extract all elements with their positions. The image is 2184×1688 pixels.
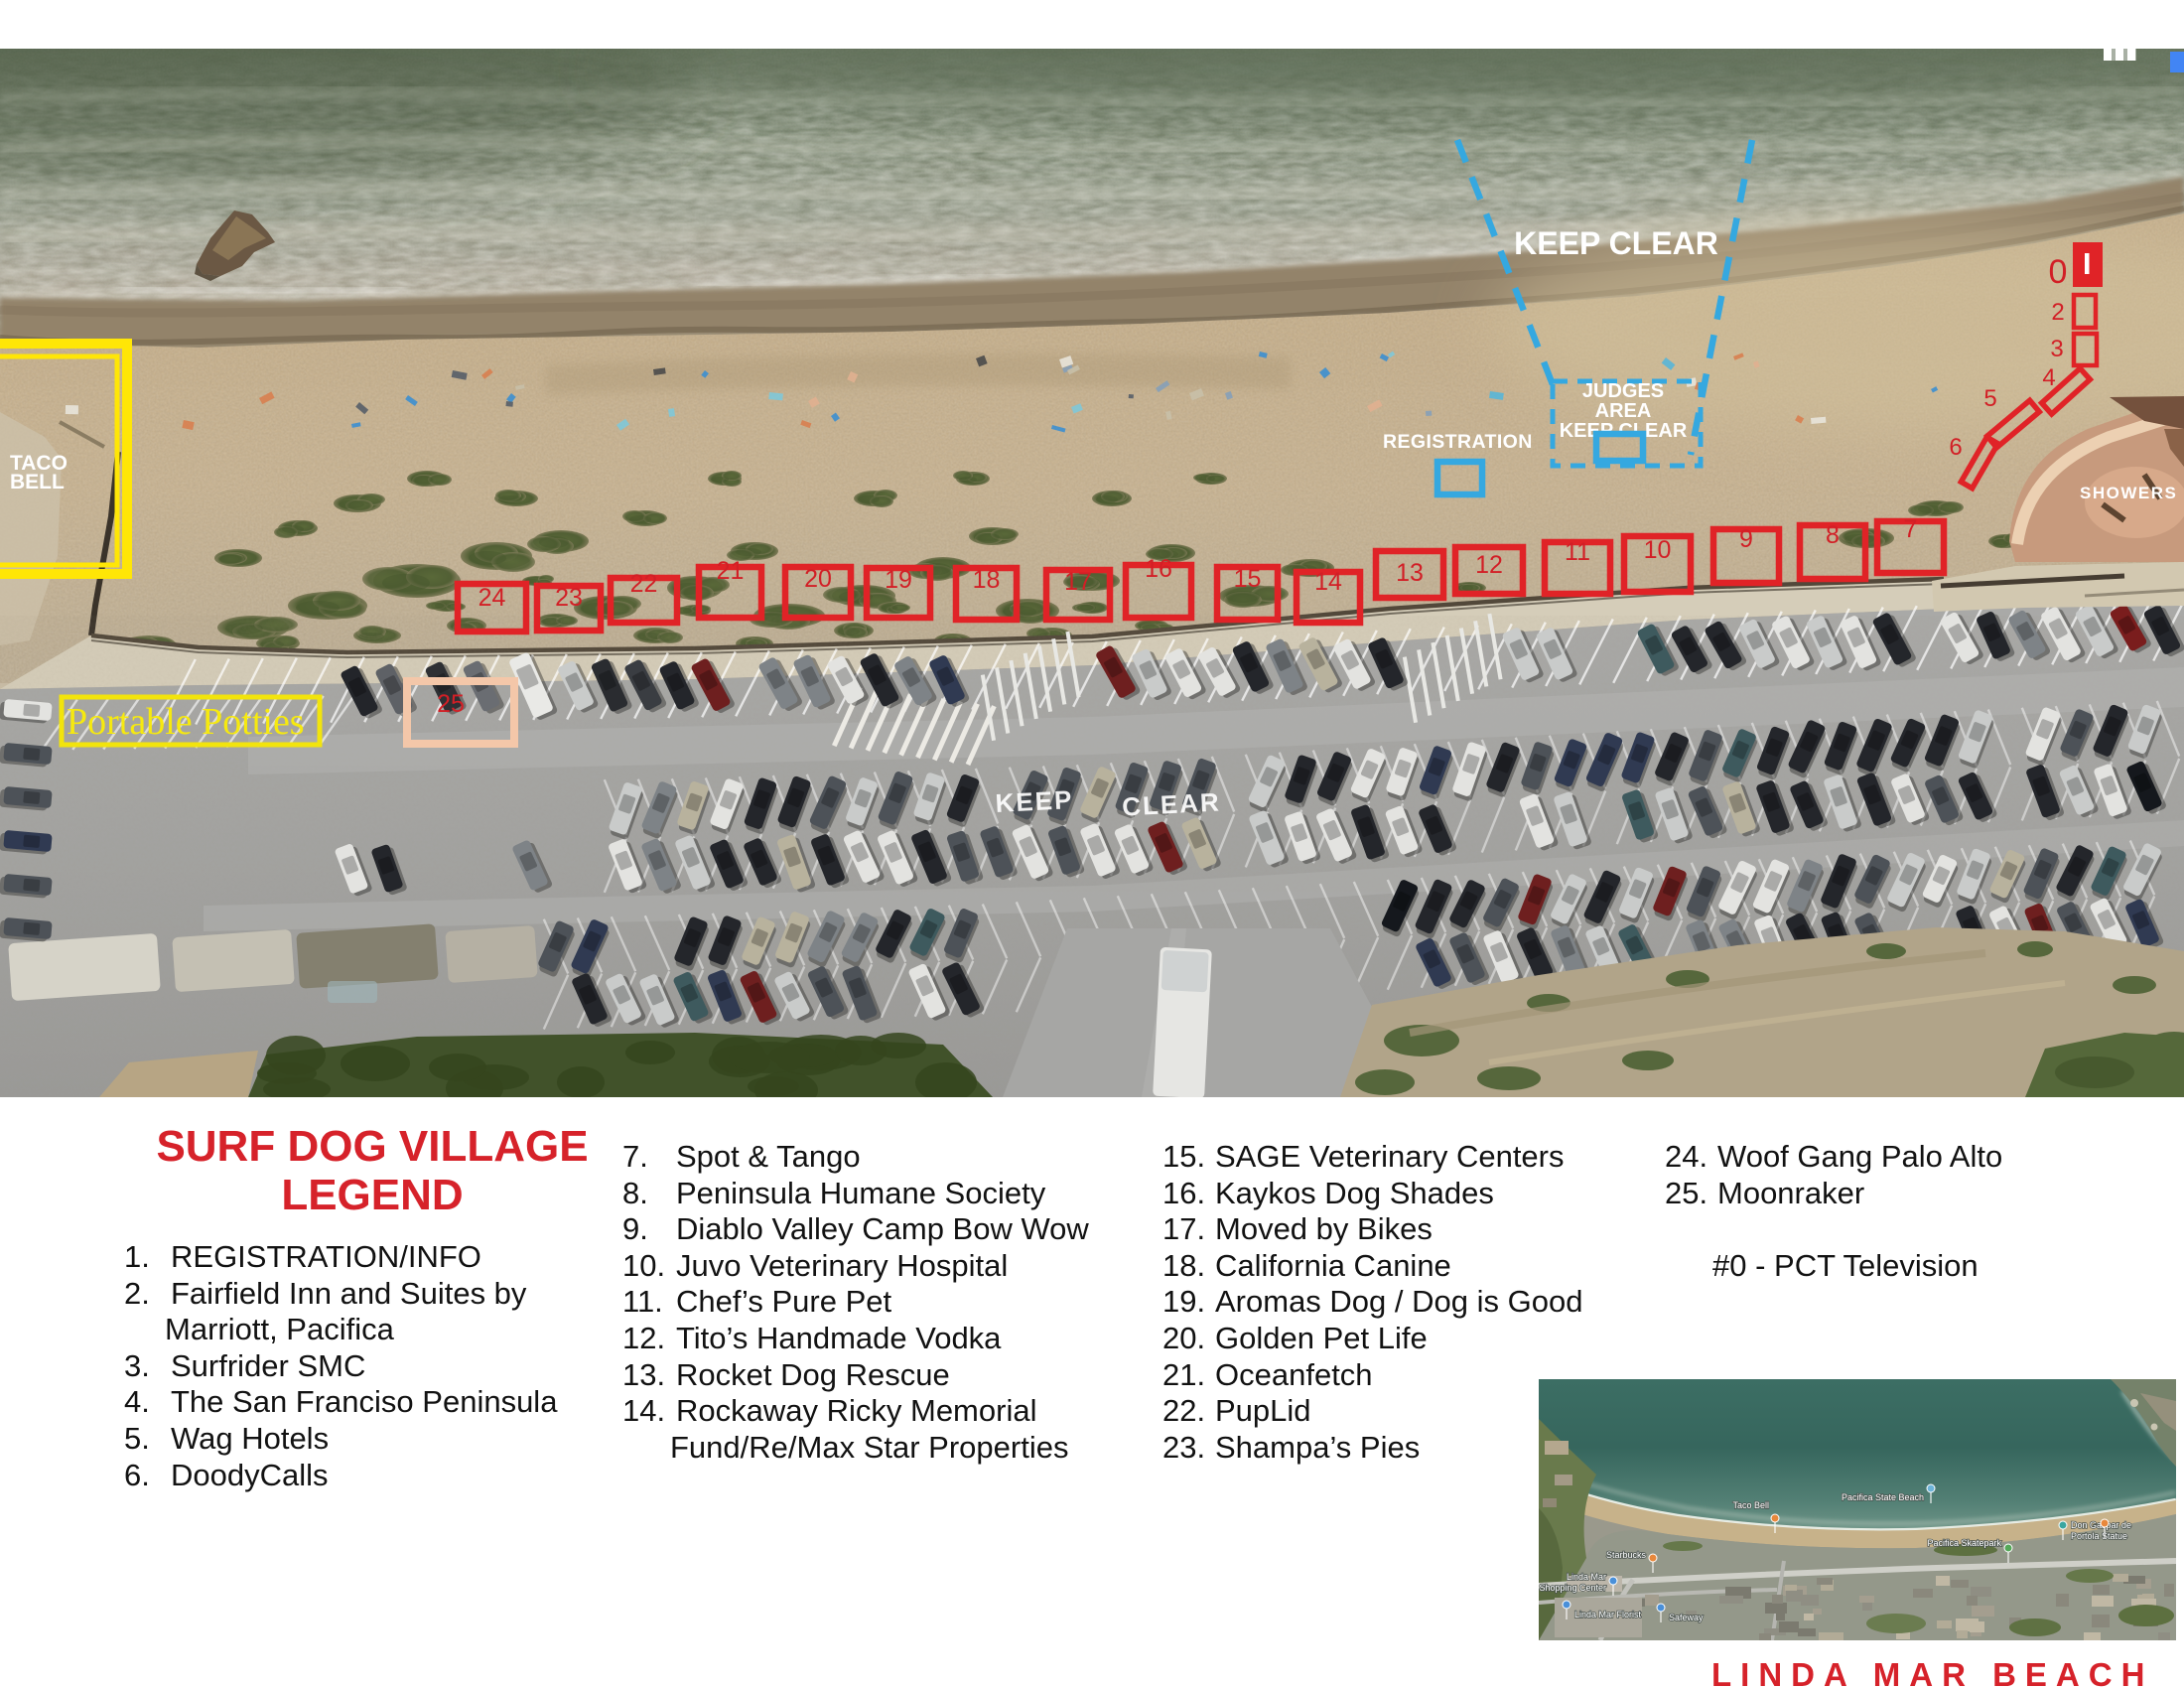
svg-text:Pacifica Skatepark: Pacifica Skatepark — [1927, 1538, 2001, 1548]
svg-text:17: 17 — [1064, 568, 1092, 596]
svg-text:Taco Bell: Taco Bell — [1732, 1500, 1769, 1510]
svg-text:9: 9 — [1739, 525, 1753, 553]
svg-text:13: 13 — [1396, 559, 1424, 587]
svg-text:Linda Mar: Linda Mar — [1567, 1572, 1606, 1582]
svg-text:6: 6 — [1949, 434, 1962, 461]
svg-text:JUDGES: JUDGES — [1582, 380, 1664, 402]
svg-text:Portola Statue: Portola Statue — [2071, 1531, 2127, 1541]
svg-text:Portable Potties: Portable Potties — [67, 701, 305, 743]
svg-text:AREA: AREA — [1595, 400, 1652, 422]
svg-text:10: 10 — [1644, 536, 1672, 564]
svg-text:Shopping Center: Shopping Center — [1539, 1583, 1606, 1593]
svg-text:2: 2 — [2051, 299, 2064, 326]
svg-text:14: 14 — [1314, 568, 1342, 596]
svg-text:Linda Mar Florist: Linda Mar Florist — [1574, 1610, 1642, 1619]
svg-text:SHOWERS: SHOWERS — [2080, 484, 2177, 502]
svg-text:REGISTRATION: REGISTRATION — [1383, 431, 1533, 453]
svg-text:Pacifica State Beach: Pacifica State Beach — [1842, 1492, 1924, 1502]
svg-text:15: 15 — [1234, 565, 1262, 593]
svg-text:11: 11 — [1565, 538, 1590, 566]
svg-text:0: 0 — [2049, 253, 2068, 291]
svg-text:23: 23 — [555, 584, 583, 612]
svg-text:4: 4 — [2042, 364, 2055, 391]
svg-text:Starbucks: Starbucks — [1606, 1550, 1647, 1560]
svg-text:3: 3 — [2050, 336, 2063, 362]
svg-text:25: 25 — [437, 690, 465, 718]
svg-text:19: 19 — [885, 566, 912, 594]
svg-text:KEEP CLEAR: KEEP CLEAR — [1514, 225, 1718, 261]
svg-text:24: 24 — [478, 584, 506, 612]
svg-text:KEEP: KEEP — [995, 784, 1074, 818]
svg-text:21: 21 — [717, 557, 745, 585]
svg-text:5: 5 — [1983, 385, 1996, 412]
svg-text:20: 20 — [804, 565, 832, 593]
svg-text:18: 18 — [973, 566, 1001, 594]
svg-text:22: 22 — [630, 570, 658, 598]
svg-text:Safeway: Safeway — [1669, 1613, 1704, 1622]
svg-text:8: 8 — [1826, 521, 1840, 549]
svg-text:BELL: BELL — [10, 471, 65, 493]
svg-text:12: 12 — [1475, 551, 1503, 579]
svg-text:7: 7 — [1904, 515, 1918, 543]
svg-text:16: 16 — [1145, 555, 1172, 583]
svg-text:CLEAR: CLEAR — [1122, 786, 1222, 821]
